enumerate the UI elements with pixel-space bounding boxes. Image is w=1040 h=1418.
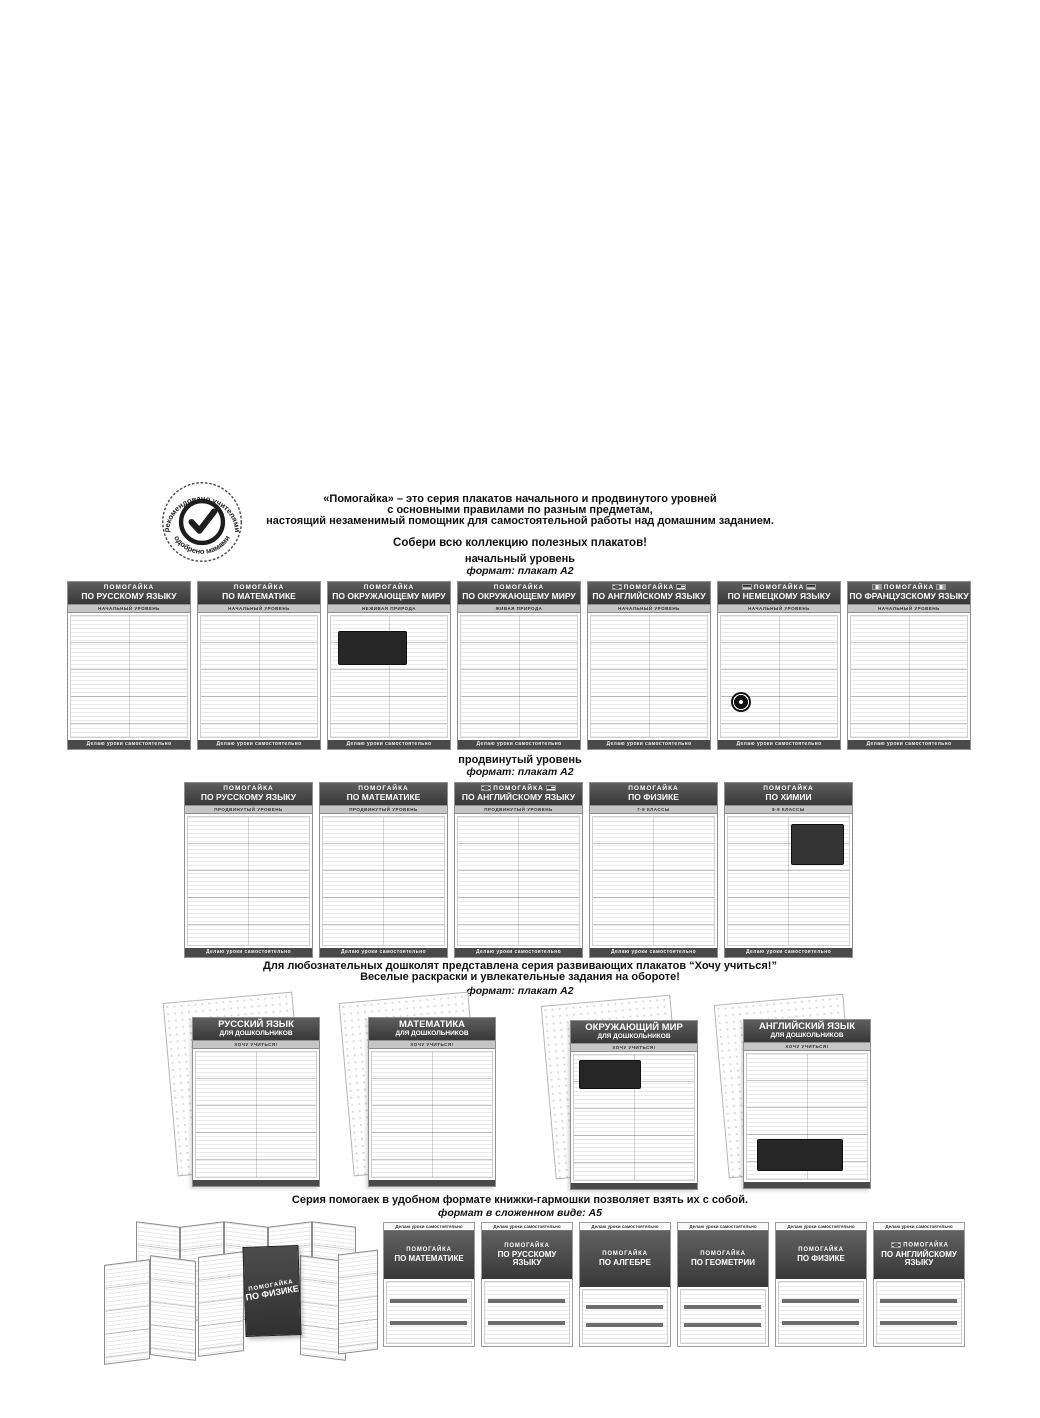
poster-thumbnail-content <box>330 615 448 739</box>
poster-subtitle: ДЛЯ ДОШКОЛЬНИКОВ <box>745 1032 869 1040</box>
booklet-title: ПО ГЕОМЕТРИИ <box>680 1259 766 1268</box>
poster-header: РУССКИЙ ЯЗЫК ДЛЯ ДОШКОЛЬНИКОВ <box>193 1018 319 1040</box>
poster-title: ПО РУССКОМУ ЯЗЫКУ <box>69 592 189 602</box>
advanced-format-line: формат: плакат А2 <box>0 767 1040 778</box>
poster-brand: ПОМОГАЙКА <box>493 785 544 792</box>
poster-beginner-english: ПОМОГАЙКА ПО АНГЛИЙСКОМУ ЯЗЫКУ НАЧАЛЬНЫЙ… <box>587 581 711 750</box>
fold-panel <box>338 1250 378 1355</box>
poster-beginner-french: ПОМОГАЙКА ПО ФРАНЦУЗСКОМУ ЯЗЫКУ НАЧАЛЬНЫ… <box>847 581 971 750</box>
us-flag-icon <box>546 785 556 791</box>
collect-heading: Собери всю коллекцию полезных плакатов! <box>0 537 1040 549</box>
advanced-level-heading: продвинутый уровень <box>0 755 1040 766</box>
poster-footer: Делаю уроки самостоятельно <box>458 740 580 749</box>
booklet-brand: ПОМОГАЙКА <box>680 1251 766 1258</box>
poster-footer-strip <box>744 1182 870 1188</box>
poster-footer-strip <box>571 1183 697 1189</box>
booklet-top-strip: Делаю уроки самостоятельно <box>384 1223 474 1231</box>
poster-footer: Делаю уроки самостоятельно <box>198 740 320 749</box>
poster-thumbnail-content <box>727 816 850 947</box>
booklet-russian: Делаю уроки самостоятельно ПОМОГАЙКА ПО … <box>481 1222 573 1347</box>
poster-advanced-chemistry: ПОМОГАЙКА ПО ХИМИИ 8-9 КЛАССЫ Делаю урок… <box>724 782 853 958</box>
poster-header: ПОМОГАЙКА ПО МАТЕМАТИКЕ <box>198 582 320 604</box>
poster-footer: Делаю уроки самостоятельно <box>718 740 840 749</box>
booklet-content-thumbnail <box>680 1289 766 1344</box>
french-flag-icon <box>872 584 882 590</box>
clock-picture <box>731 692 751 712</box>
poster-preschool-math: МАТЕМАТИКА ДЛЯ ДОШКОЛЬНИКОВ ХОЧУ УЧИТЬСЯ… <box>368 1017 496 1187</box>
poster-header: АНГЛИЙСКИЙ ЯЗЫК ДЛЯ ДОШКОЛЬНИКОВ <box>744 1020 870 1042</box>
fold-panel <box>198 1251 244 1357</box>
poster-subtitle: ДЛЯ ДОШКОЛЬНИКОВ <box>572 1033 696 1041</box>
preschool-item-world: ОКРУЖАЮЩИЙ МИР ДЛЯ ДОШКОЛЬНИКОВ ХОЧУ УЧИ… <box>548 1000 700 1196</box>
series-brand: «Помогайка» <box>323 493 394 505</box>
booklet-header: ПОМОГАЙКА ПО ГЕОМЕТРИИ <box>678 1231 768 1287</box>
poster-footer-strip <box>193 1180 319 1186</box>
preschool-format-line: формат: плакат А2 <box>0 986 1040 997</box>
beginner-level-heading: начальный уровень <box>0 554 1040 565</box>
series-band: ХОЧУ УЧИТЬСЯ! <box>744 1042 870 1051</box>
poster-header: ПОМОГАЙКА ПО РУССКОМУ ЯЗЫКУ <box>68 582 190 604</box>
poster-title: ПО МАТЕМАТИКЕ <box>321 793 446 803</box>
booklet-content-thumbnail <box>876 1281 962 1344</box>
uk-flag-icon <box>612 584 622 590</box>
poster-subtitle: ДЛЯ ДОШКОЛЬНИКОВ <box>194 1030 318 1038</box>
series-band: ХОЧУ УЧИТЬСЯ! <box>571 1043 697 1052</box>
series-band: ХОЧУ УЧИТЬСЯ! <box>369 1040 495 1049</box>
booklet-content-thumbnail <box>778 1281 864 1344</box>
poster-header: ПОМОГАЙКА ПО ФИЗИКЕ <box>590 783 717 805</box>
poster-footer: Делаю уроки самостоятельно <box>320 948 447 957</box>
poster-subtitle: ПРОДВИНУТЫЙ УРОВЕНЬ <box>455 805 582 814</box>
french-flag-icon <box>936 584 946 590</box>
poster-beginner-russian: ПОМОГАЙКА ПО РУССКОМУ ЯЗЫКУ НАЧАЛЬНЫЙ УР… <box>67 581 191 750</box>
poster-subtitle: НАЧАЛЬНЫЙ УРОВЕНЬ <box>588 604 710 613</box>
poster-brand: ПОМОГАЙКА <box>624 584 675 591</box>
nature-picture <box>579 1060 641 1090</box>
accordion-line-1: Серия помогаек в удобном формате книжки-… <box>0 1195 1040 1206</box>
uk-flag-icon <box>481 785 491 791</box>
poster-title: МАТЕМАТИКА <box>370 1020 494 1030</box>
preschool-item-russian: РУССКИЙ ЯЗЫК ДЛЯ ДОШКОЛЬНИКОВ ХОЧУ УЧИТЬ… <box>170 997 322 1193</box>
poster-header: ОКРУЖАЮЩИЙ МИР ДЛЯ ДОШКОЛЬНИКОВ <box>571 1021 697 1043</box>
poster-preschool-english: АНГЛИЙСКИЙ ЯЗЫК ДЛЯ ДОШКОЛЬНИКОВ ХОЧУ УЧ… <box>743 1019 871 1189</box>
booklet-header: ПОМОГАЙКА ПО АЛГЕБРЕ <box>580 1231 670 1287</box>
poster-subtitle: ДЛЯ ДОШКОЛЬНИКОВ <box>370 1030 494 1038</box>
poster-footer: Делаю уроки самостоятельно <box>725 948 852 957</box>
accordion-foldout-illustration: ПОМОГАЙКА ПО ФИЗИКЕ <box>102 1222 380 1380</box>
poster-title: ПО ФРАНЦУЗСКОМУ ЯЗЫКУ <box>849 592 969 602</box>
poster-thumbnail-content <box>195 1051 317 1179</box>
poster-title: ПО ХИМИИ <box>726 793 851 803</box>
poster-title: ОКРУЖАЮЩИЙ МИР <box>572 1023 696 1033</box>
poster-header: ПОМОГАЙКА ПО ХИМИИ <box>725 783 852 805</box>
poster-beginner-world-inanimate: ПОМОГАЙКА ПО ОКРУЖАЮЩЕМУ МИРУ НЕЖИВАЯ ПР… <box>327 581 451 750</box>
poster-thumbnail-content <box>457 816 580 947</box>
booklet-top-strip: Делаю уроки самостоятельно <box>678 1223 768 1231</box>
accordion-keyword: книжки-гармошки <box>494 1194 590 1206</box>
poster-footer: Делаю уроки самостоятельно <box>848 740 970 749</box>
poster-title: ПО РУССКОМУ ЯЗЫКУ <box>186 793 311 803</box>
poster-thumbnail-content <box>746 1053 868 1181</box>
booklet-content-thumbnail <box>582 1289 668 1344</box>
booklet-algebra: Делаю уроки самостоятельно ПОМОГАЙКА ПО … <box>579 1222 671 1347</box>
poster-title: ПО ОКРУЖАЮЩЕМУ МИРУ <box>459 592 579 602</box>
poster-thumbnail-content <box>187 816 310 947</box>
poster-advanced-english: ПОМОГАЙКА ПО АНГЛИЙСКОМУ ЯЗЫКУ ПРОДВИНУТ… <box>454 782 583 958</box>
poster-thumbnail-content <box>460 615 578 739</box>
preschool-item-math: МАТЕМАТИКА ДЛЯ ДОШКОЛЬНИКОВ ХОЧУ УЧИТЬСЯ… <box>346 997 498 1193</box>
poster-subtitle: 8-9 КЛАССЫ <box>725 805 852 814</box>
poster-thumbnail-content <box>200 615 318 739</box>
poster-beginner-world-animate: ПОМОГАЙКА ПО ОКРУЖАЮЩЕМУ МИРУ ЖИВАЯ ПРИР… <box>457 581 581 750</box>
poster-header: ПОМОГАЙКА ПО ФРАНЦУЗСКОМУ ЯЗЫКУ <box>848 582 970 604</box>
booklet-geometry: Делаю уроки самостоятельно ПОМОГАЙКА ПО … <box>677 1222 769 1347</box>
booklet-brand: ПОМОГАЙКА <box>386 1247 472 1254</box>
poster-header: ПОМОГАЙКА ПО НЕМЕЦКОМУ ЯЗЫКУ <box>718 582 840 604</box>
poster-footer: Делаю уроки самостоятельно <box>68 740 190 749</box>
booklet-brand: ПОМОГАЙКА <box>484 1243 570 1250</box>
poster-header: ПОМОГАЙКА ПО АНГЛИЙСКОМУ ЯЗЫКУ <box>455 783 582 805</box>
periodic-table-picture <box>791 824 844 865</box>
poster-title: ПО ФИЗИКЕ <box>591 793 716 803</box>
poster-brand: ПОМОГАЙКА <box>884 584 935 591</box>
booklet-brand-line: ПОМОГАЙКА <box>876 1242 962 1250</box>
poster-title: ПО НЕМЕЦКОМУ ЯЗЫКУ <box>719 592 839 602</box>
accordion-format-line: формат в сложенном виде: А5 <box>0 1208 1040 1219</box>
poster-title: ПО МАТЕМАТИКЕ <box>199 592 319 602</box>
preschool-line-2: Веселые раскраски и увлекательные задани… <box>0 972 1040 983</box>
poster-footer: Делаю уроки самостоятельно <box>185 948 312 957</box>
booklet-header: ПОМОГАЙКА ПО ФИЗИКЕ <box>776 1231 866 1279</box>
poster-subtitle: 7-9 КЛАССЫ <box>590 805 717 814</box>
us-flag-icon <box>676 584 686 590</box>
poster-header: ПОМОГАЙКА ПО МАТЕМАТИКЕ <box>320 783 447 805</box>
german-flag-icon <box>806 584 816 590</box>
booklet-top-strip: Делаю уроки самостоятельно <box>874 1223 964 1231</box>
poster-footer: Делаю уроки самостоятельно <box>590 948 717 957</box>
uk-flag-icon <box>891 1242 901 1248</box>
booklet-title: ПО МАТЕМАТИКЕ <box>386 1255 472 1264</box>
poster-title: ПО ОКРУЖАЮЩЕМУ МИРУ <box>329 592 449 602</box>
poster-footer: Делаю уроки самостоятельно <box>328 740 450 749</box>
poster-thumbnail-content <box>70 615 188 739</box>
foldout-cover-text: ПОМОГАЙКА ПО ФИЗИКЕ <box>244 1279 300 1304</box>
booklet-title: ПО АНГЛИЙСКОМУ ЯЗЫКУ <box>876 1251 962 1268</box>
poster-thumbnail-content <box>590 615 708 739</box>
booklet-physics: Делаю уроки самостоятельно ПОМОГАЙКА ПО … <box>775 1222 867 1347</box>
poster-header: ПОМОГАЙКА ПО АНГЛИЙСКОМУ ЯЗЫКУ <box>588 582 710 604</box>
booklet-math: Делаю уроки самостоятельно ПОМОГАЙКА ПО … <box>383 1222 475 1347</box>
poster-brand: ПОМОГАЙКА <box>754 584 805 591</box>
booklet-header: ПОМОГАЙКА ПО АНГЛИЙСКОМУ ЯЗЫКУ <box>874 1231 964 1279</box>
poster-thumbnail-content <box>371 1051 493 1179</box>
poster-thumbnail-content <box>322 816 445 947</box>
poster-thumbnail-content <box>720 615 838 739</box>
booklet-title: ПО АЛГЕБРЕ <box>582 1259 668 1268</box>
booklet-covers-row: Делаю уроки самостоятельно ПОМОГАЙКА ПО … <box>383 1222 965 1347</box>
poster-subtitle: НЕЖИВАЯ ПРИРОДА <box>328 604 450 613</box>
poster-header: МАТЕМАТИКА ДЛЯ ДОШКОЛЬНИКОВ <box>369 1018 495 1040</box>
poster-header: ПОМОГАЙКА ПО РУССКОМУ ЯЗЫКУ <box>185 783 312 805</box>
poster-subtitle: НАЧАЛЬНЫЙ УРОВЕНЬ <box>848 604 970 613</box>
poster-footer-strip <box>369 1180 495 1186</box>
poster-thumbnail-content <box>573 1054 695 1182</box>
booklet-title: ПО ФИЗИКЕ <box>778 1255 864 1264</box>
poster-subtitle: НАЧАЛЬНЫЙ УРОВЕНЬ <box>718 604 840 613</box>
booklet-header: ПОМОГАЙКА ПО МАТЕМАТИКЕ <box>384 1231 474 1279</box>
booklet-brand: ПОМОГАЙКА <box>903 1243 949 1249</box>
poster-thumbnail-content <box>850 615 968 739</box>
catalog-page: рекомендовано учителями одобрено мамами … <box>0 0 1040 1418</box>
booklet-top-strip: Делаю уроки самостоятельно <box>482 1223 572 1231</box>
poster-advanced-russian: ПОМОГАЙКА ПО РУССКОМУ ЯЗЫКУ ПРОДВИНУТЫЙ … <box>184 782 313 958</box>
house-picture <box>757 1139 843 1171</box>
poster-thumbnail-content <box>592 816 715 947</box>
poster-title: ПО АНГЛИЙСКОМУ ЯЗЫКУ <box>589 592 709 602</box>
poster-preschool-russian: РУССКИЙ ЯЗЫК ДЛЯ ДОШКОЛЬНИКОВ ХОЧУ УЧИТЬ… <box>192 1017 320 1187</box>
booklet-english: Делаю уроки самостоятельно ПОМОГАЙКА ПО … <box>873 1222 965 1347</box>
poster-subtitle: ПРОДВИНУТЫЙ УРОВЕНЬ <box>320 805 447 814</box>
preschool-item-english: АНГЛИЙСКИЙ ЯЗЫК ДЛЯ ДОШКОЛЬНИКОВ ХОЧУ УЧ… <box>721 999 873 1195</box>
poster-subtitle: НАЧАЛЬНЫЙ УРОВЕНЬ <box>198 604 320 613</box>
poster-title: РУССКИЙ ЯЗЫК <box>194 1020 318 1030</box>
german-flag-icon <box>742 584 752 590</box>
beginner-posters-row: ПОМОГАЙКА ПО РУССКОМУ ЯЗЫКУ НАЧАЛЬНЫЙ УР… <box>67 581 971 750</box>
fold-panel <box>104 1259 150 1365</box>
booklet-top-strip: Делаю уроки самостоятельно <box>776 1223 866 1231</box>
poster-preschool-world: ОКРУЖАЮЩИЙ МИР ДЛЯ ДОШКОЛЬНИКОВ ХОЧУ УЧИ… <box>570 1020 698 1190</box>
foldout-cover-physics: ПОМОГАЙКА ПО ФИЗИКЕ <box>242 1245 301 1337</box>
booklet-top-strip: Делаю уроки самостоятельно <box>580 1223 670 1231</box>
booklet-content-thumbnail <box>484 1281 570 1344</box>
fold-panel <box>150 1255 196 1361</box>
booklet-title: ПО РУССКОМУ ЯЗЫКУ <box>484 1251 570 1268</box>
poster-footer: Делаю уроки самостоятельно <box>588 740 710 749</box>
space-picture <box>338 631 407 665</box>
booklet-brand: ПОМОГАЙКА <box>778 1247 864 1254</box>
poster-title: ПО АНГЛИЙСКОМУ ЯЗЫКУ <box>456 793 581 803</box>
poster-subtitle: НАЧАЛЬНЫЙ УРОВЕНЬ <box>68 604 190 613</box>
beginner-format-line: формат: плакат А2 <box>0 566 1040 577</box>
intro-line-3: настоящий незаменимый помощник для самос… <box>0 516 1040 527</box>
poster-footer: Делаю уроки самостоятельно <box>455 948 582 957</box>
poster-subtitle: ПРОДВИНУТЫЙ УРОВЕНЬ <box>185 805 312 814</box>
advanced-posters-row: ПОМОГАЙКА ПО РУССКОМУ ЯЗЫКУ ПРОДВИНУТЫЙ … <box>184 782 853 958</box>
series-band: ХОЧУ УЧИТЬСЯ! <box>193 1040 319 1049</box>
poster-advanced-physics: ПОМОГАЙКА ПО ФИЗИКЕ 7-9 КЛАССЫ Делаю уро… <box>589 782 718 958</box>
poster-advanced-math: ПОМОГАЙКА ПО МАТЕМАТИКЕ ПРОДВИНУТЫЙ УРОВ… <box>319 782 448 958</box>
poster-subtitle: ЖИВАЯ ПРИРОДА <box>458 604 580 613</box>
poster-header: ПОМОГАЙКА ПО ОКРУЖАЮЩЕМУ МИРУ <box>328 582 450 604</box>
booklet-header: ПОМОГАЙКА ПО РУССКОМУ ЯЗЫКУ <box>482 1231 572 1279</box>
booklet-content-thumbnail <box>386 1281 472 1344</box>
poster-title: АНГЛИЙСКИЙ ЯЗЫК <box>745 1022 869 1032</box>
poster-header: ПОМОГАЙКА ПО ОКРУЖАЮЩЕМУ МИРУ <box>458 582 580 604</box>
booklet-brand: ПОМОГАЙКА <box>582 1251 668 1258</box>
poster-beginner-math: ПОМОГАЙКА ПО МАТЕМАТИКЕ НАЧАЛЬНЫЙ УРОВЕН… <box>197 581 321 750</box>
poster-beginner-german: ПОМОГАЙКА ПО НЕМЕЦКОМУ ЯЗЫКУ НАЧАЛЬНЫЙ У… <box>717 581 841 750</box>
